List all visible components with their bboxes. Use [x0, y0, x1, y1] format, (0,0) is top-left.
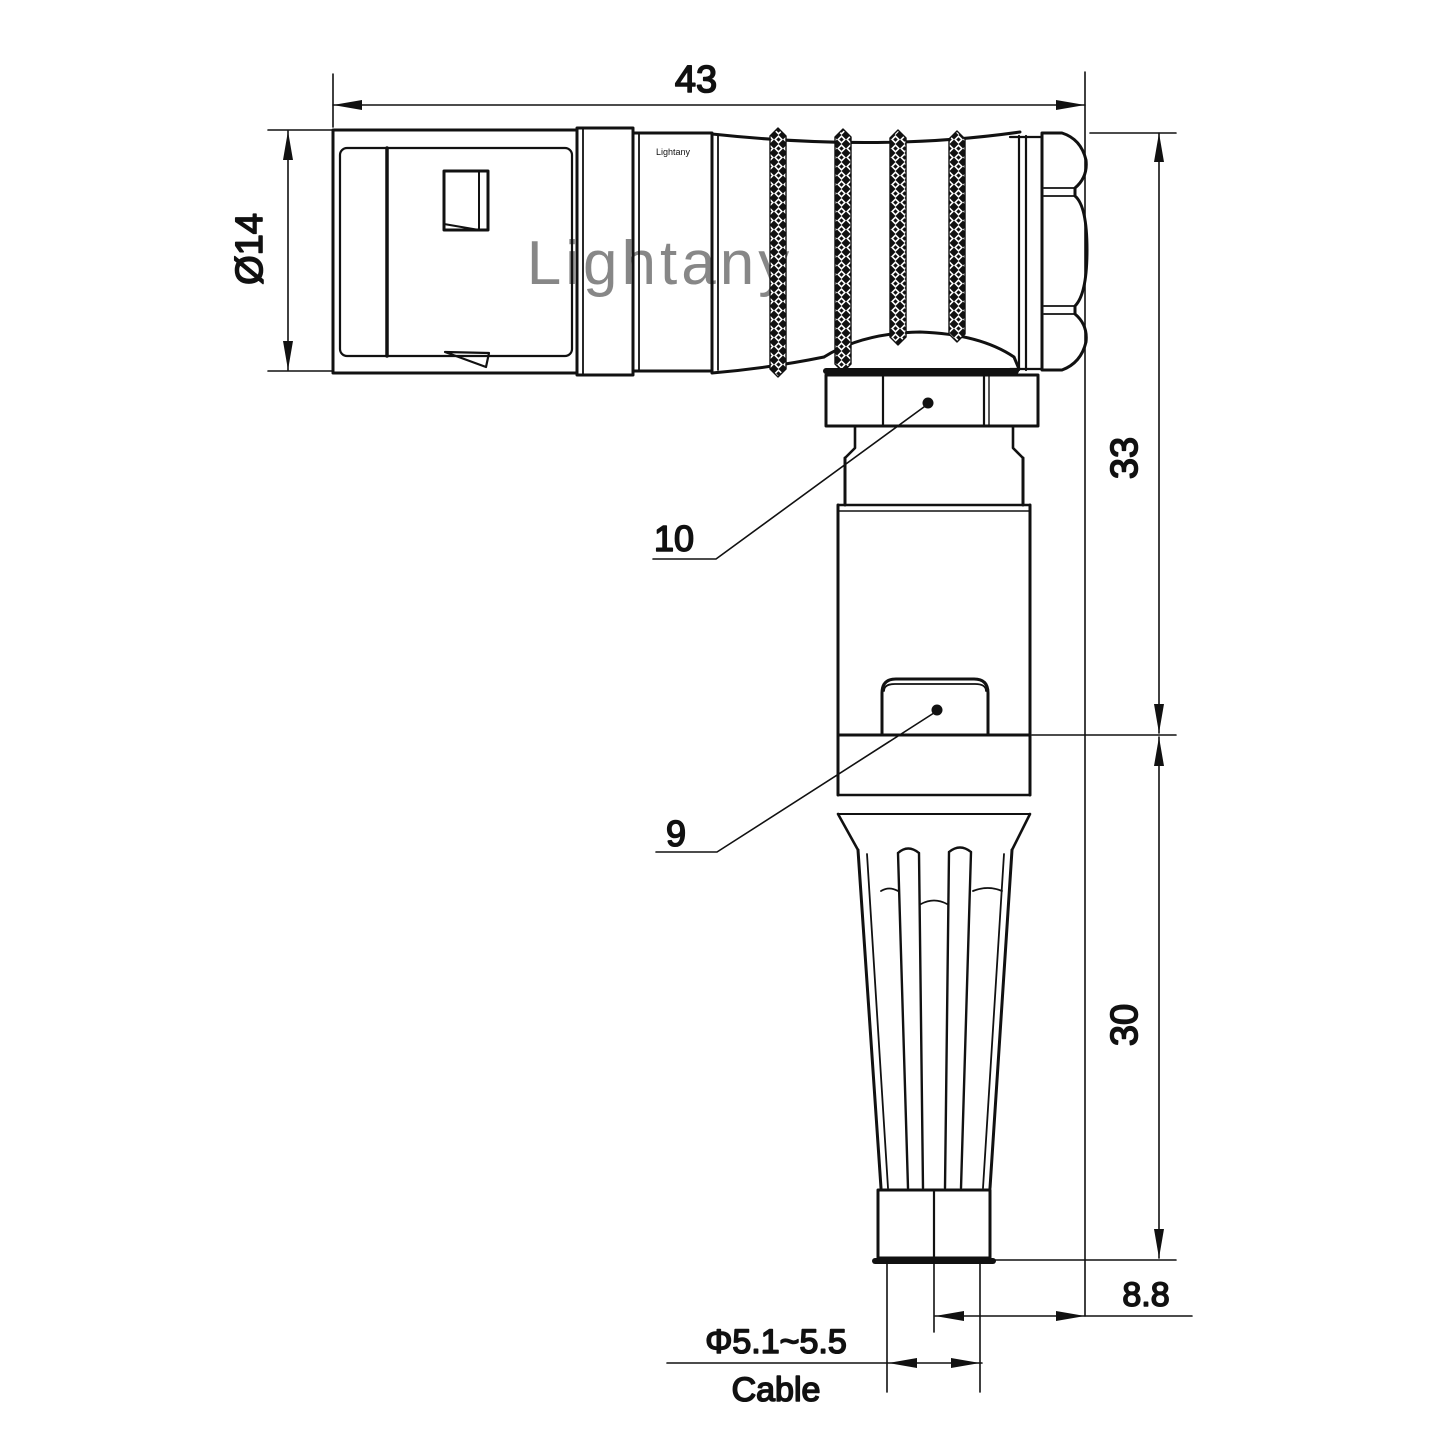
- label-10-leader: [653, 398, 934, 560]
- dim-lower-height-label: 30: [1104, 1004, 1146, 1046]
- hex-nut: [826, 371, 1038, 426]
- watermark-text: Lightany: [527, 229, 793, 298]
- cable-ferrule: [875, 1190, 993, 1261]
- dim-front-diameter-label: Ø14: [229, 213, 271, 285]
- dim-upper-height: [1032, 133, 1176, 735]
- strain-relief: [838, 814, 1030, 1188]
- end-cap: [1010, 133, 1087, 370]
- technical-drawing-page: Lightany: [0, 0, 1440, 1440]
- dim-upper-height-label: 33: [1104, 437, 1146, 479]
- cable-label: Cable: [732, 1371, 821, 1409]
- dim-front-diameter: [268, 130, 333, 371]
- latch-window: [444, 171, 488, 230]
- dim-overall-length-label: 43: [675, 59, 717, 101]
- dim-cable-offset-label: 8.8: [1122, 1276, 1169, 1314]
- label-9-leader: [656, 705, 943, 853]
- dim-cable-diameter-label: Φ5.1~5.5: [705, 1323, 847, 1361]
- connector-dimension-drawing: Lightany: [0, 0, 1440, 1440]
- part-label-9: 9: [666, 813, 686, 854]
- latch-wedge: [445, 352, 489, 367]
- brand-mark: Lightany: [656, 147, 691, 157]
- part-label-10: 10: [654, 518, 694, 559]
